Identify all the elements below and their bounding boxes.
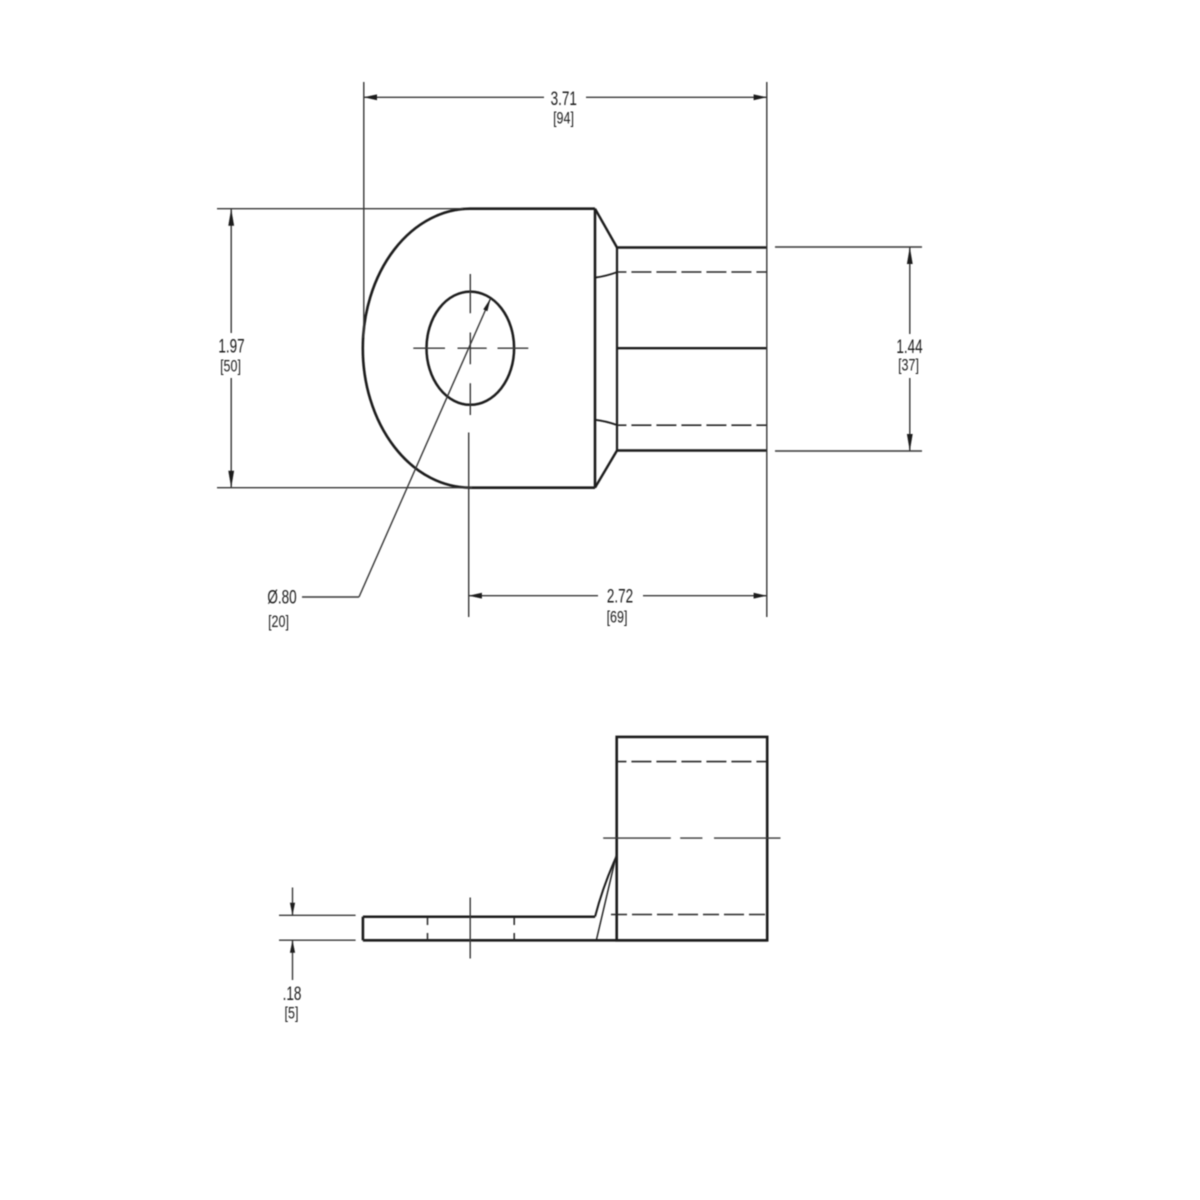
- svg-text:.18: .18: [283, 983, 302, 1005]
- svg-text:2.72: 2.72: [607, 585, 633, 607]
- svg-text:3.71: 3.71: [551, 87, 577, 109]
- svg-text:[94]: [94]: [553, 110, 574, 128]
- svg-text:[69]: [69]: [607, 609, 628, 627]
- svg-text:[20]: [20]: [268, 613, 289, 631]
- svg-text:1.97: 1.97: [218, 335, 244, 357]
- svg-text:Ø.80: Ø.80: [267, 586, 296, 608]
- svg-text:1.44: 1.44: [896, 335, 922, 357]
- svg-text:[37]: [37]: [898, 357, 919, 375]
- svg-text:[50]: [50]: [220, 358, 241, 376]
- svg-text:[5]: [5]: [285, 1005, 299, 1023]
